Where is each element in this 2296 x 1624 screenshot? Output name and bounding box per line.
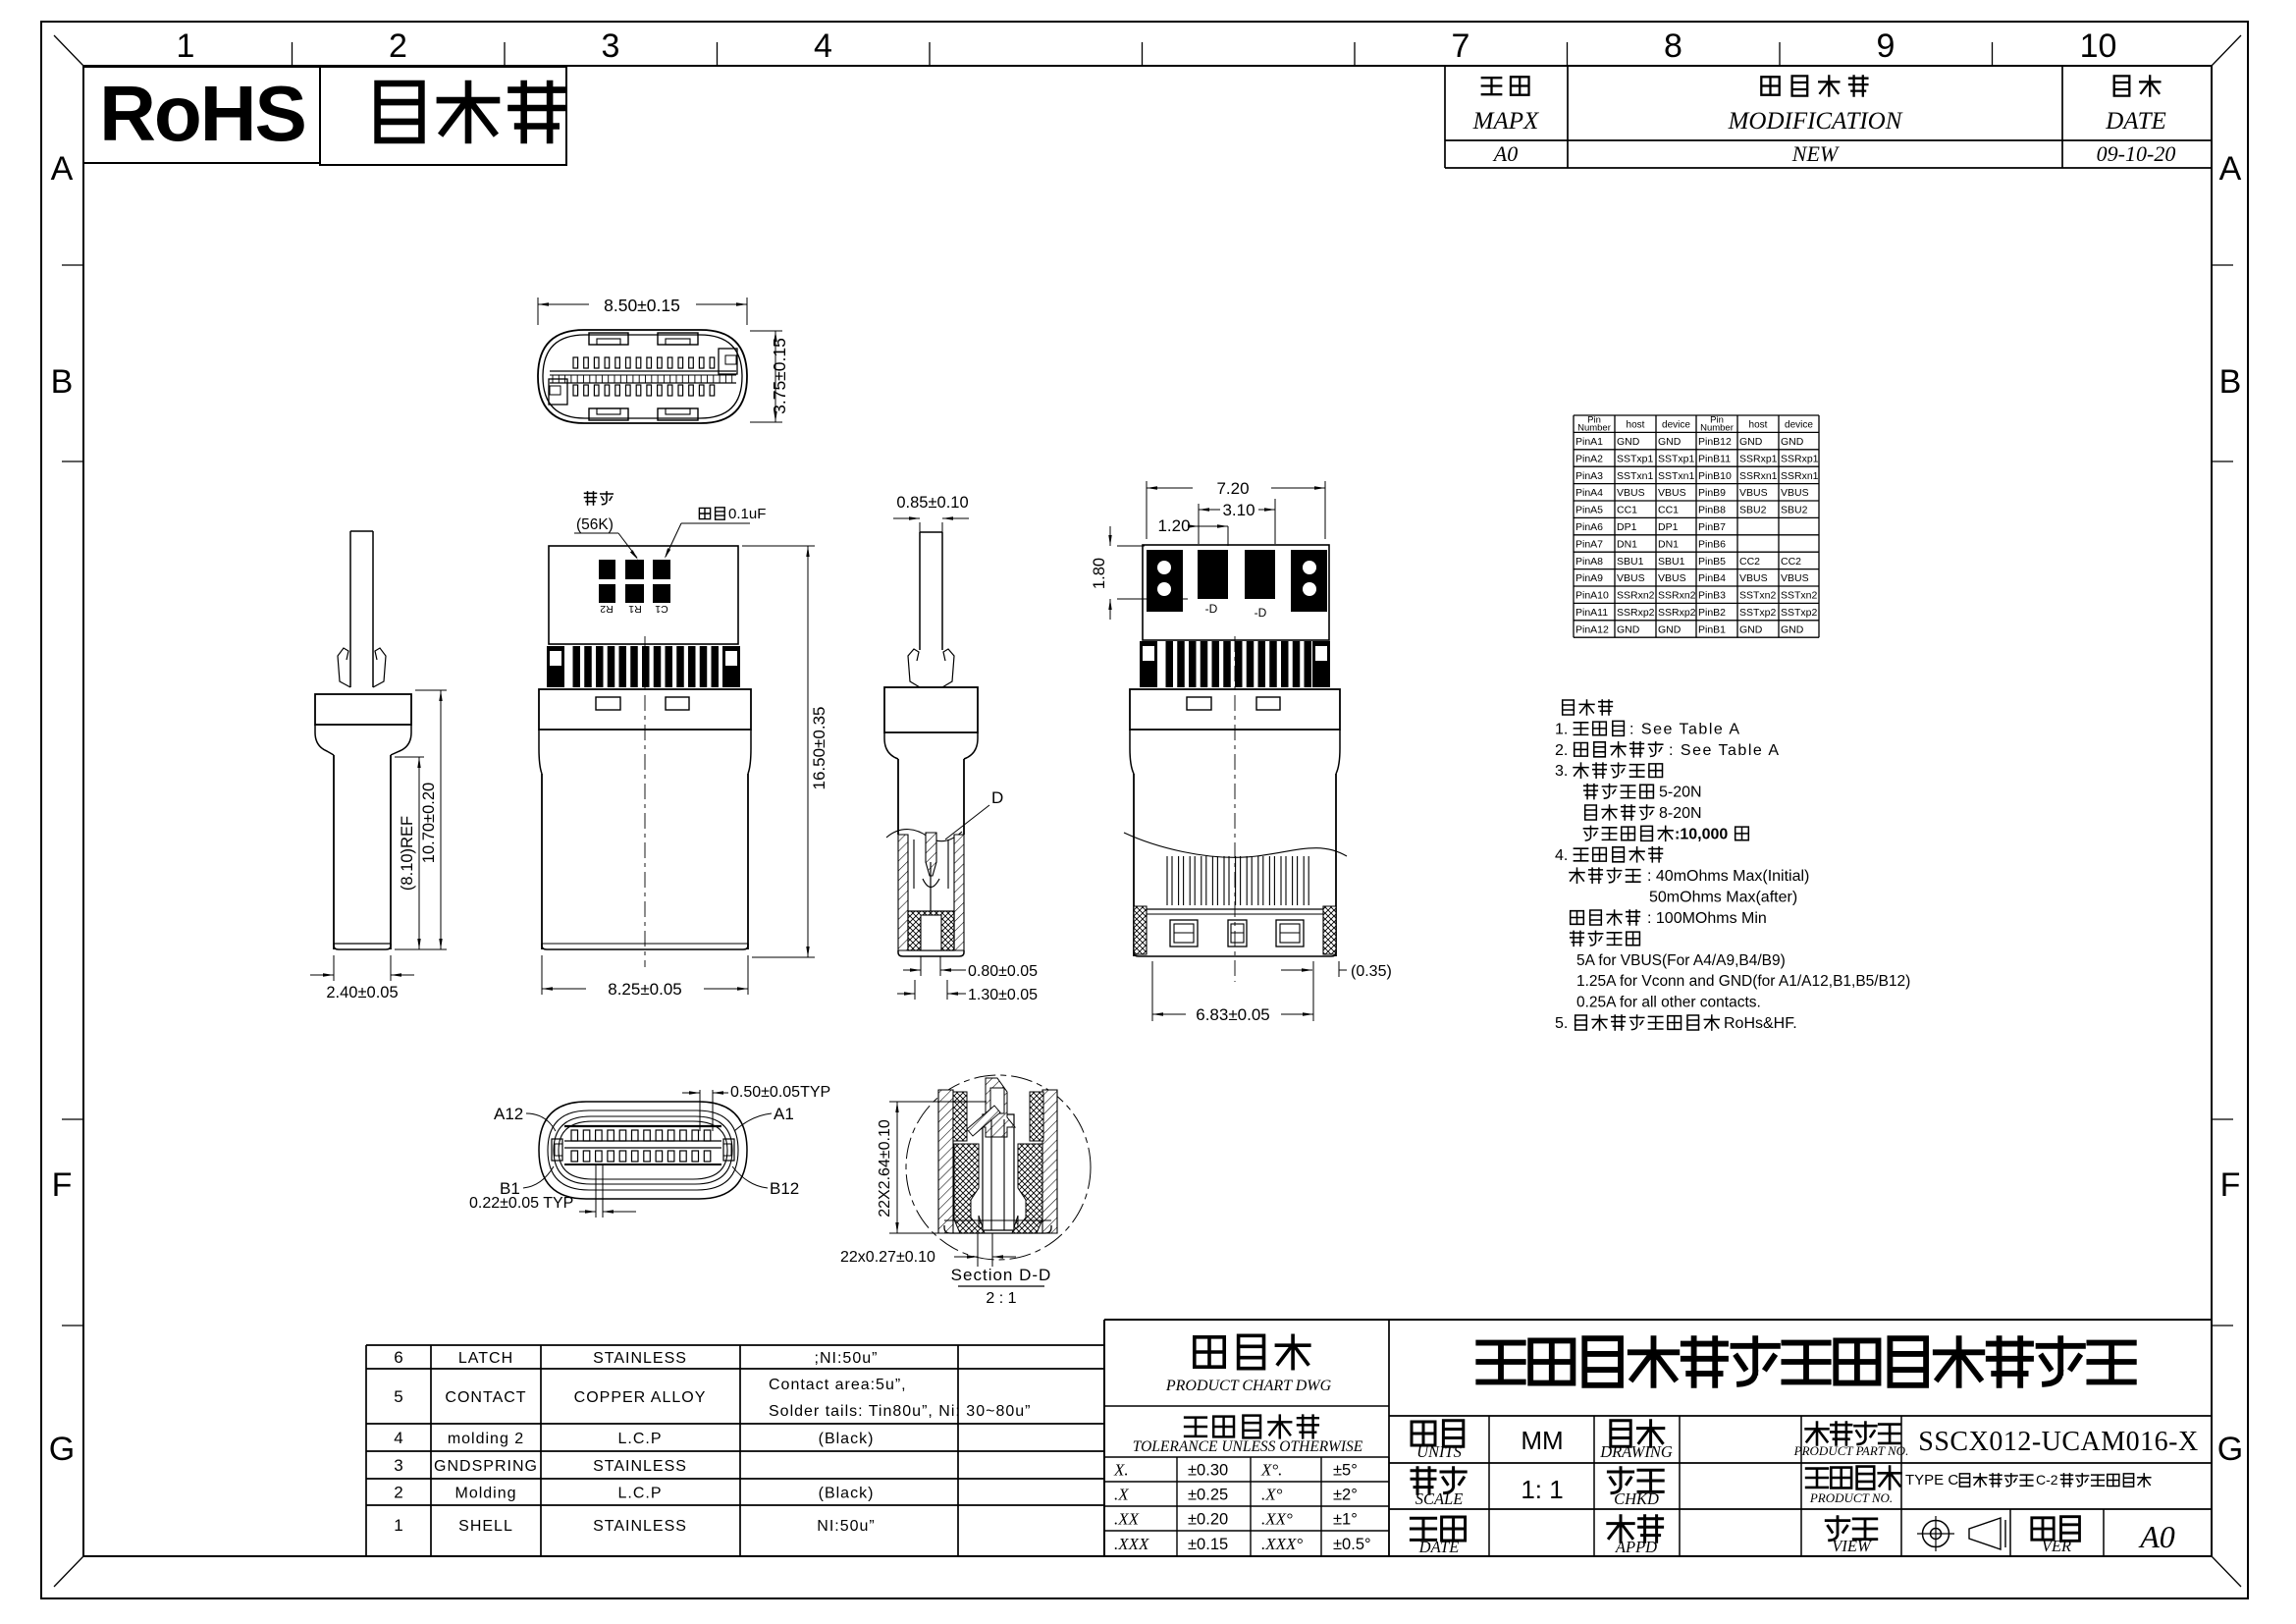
svg-text:PinB11: PinB11 xyxy=(1698,453,1731,464)
svg-text:PinA8: PinA8 xyxy=(1575,556,1603,568)
svg-text:CC1: CC1 xyxy=(1658,505,1679,516)
svg-text:GNDSPRING: GNDSPRING xyxy=(434,1458,538,1475)
svg-text:MM: MM xyxy=(1521,1426,1563,1455)
svg-text:SSTxn1: SSTxn1 xyxy=(1658,470,1695,482)
svg-text:A1: A1 xyxy=(774,1105,794,1123)
svg-text:SCALE: SCALE xyxy=(1415,1489,1464,1508)
svg-text:X°.: X°. xyxy=(1260,1461,1282,1480)
svg-text:PinB9: PinB9 xyxy=(1698,487,1726,499)
svg-text:VER: VER xyxy=(2042,1537,2071,1555)
svg-text:1.30±0.05: 1.30±0.05 xyxy=(968,987,1038,1003)
svg-text:±5°: ±5° xyxy=(1333,1462,1358,1480)
svg-text:R2: R2 xyxy=(600,603,614,615)
svg-text:GND: GND xyxy=(1781,436,1804,448)
svg-text:TYPE C: TYPE C xyxy=(1905,1472,1958,1489)
svg-text:3.75±0.15: 3.75±0.15 xyxy=(770,338,789,414)
svg-text:STAINLESS: STAINLESS xyxy=(593,1458,687,1475)
svg-text:PRODUCT PART NO.: PRODUCT PART NO. xyxy=(1793,1443,1909,1458)
svg-text:(Black): (Black) xyxy=(819,1431,875,1447)
svg-text:PinA1: PinA1 xyxy=(1575,436,1603,448)
svg-text:3: 3 xyxy=(602,27,620,65)
svg-text:6: 6 xyxy=(394,1348,402,1367)
svg-text:DN1: DN1 xyxy=(1658,538,1679,550)
svg-text:R1: R1 xyxy=(628,603,642,615)
svg-text:X.: X. xyxy=(1113,1461,1129,1480)
svg-text::10,000: :10,000 xyxy=(1675,826,1728,842)
svg-text:SSRxp2: SSRxp2 xyxy=(1617,607,1655,619)
svg-text:CC2: CC2 xyxy=(1739,556,1760,568)
svg-text:SSTxp1: SSTxp1 xyxy=(1617,453,1654,464)
svg-text:A0: A0 xyxy=(1492,141,1518,166)
svg-text:PinB3: PinB3 xyxy=(1698,590,1726,602)
svg-text:.XX: .XX xyxy=(1114,1510,1140,1529)
svg-text:0.80±0.05: 0.80±0.05 xyxy=(968,963,1038,980)
svg-text:device: device xyxy=(1785,420,1813,431)
svg-text:RoHs&HF.: RoHs&HF. xyxy=(1724,1015,1797,1032)
svg-text:VBUS: VBUS xyxy=(1658,487,1686,499)
svg-text:PinB1: PinB1 xyxy=(1698,623,1726,635)
svg-text:09-10-20: 09-10-20 xyxy=(2097,141,2176,166)
svg-text:Number: Number xyxy=(1700,423,1734,434)
svg-text:2 : 1: 2 : 1 xyxy=(986,1290,1016,1307)
svg-text:PRODUCT CHART DWG: PRODUCT CHART DWG xyxy=(1165,1378,1332,1394)
svg-text:B: B xyxy=(51,363,74,401)
svg-text:STAINLESS: STAINLESS xyxy=(593,1350,687,1367)
svg-text:PinA11: PinA11 xyxy=(1575,607,1608,619)
svg-text:10.70±0.20: 10.70±0.20 xyxy=(420,783,438,863)
svg-text:1.80: 1.80 xyxy=(1091,558,1108,589)
svg-text:: See Table A: : See Table A xyxy=(1669,742,1781,759)
svg-text:SSRxn1: SSRxn1 xyxy=(1781,470,1819,482)
svg-text:.X: .X xyxy=(1114,1486,1129,1504)
svg-text:A: A xyxy=(51,150,74,188)
svg-text:device: device xyxy=(1662,420,1690,431)
svg-text:8: 8 xyxy=(1664,27,1682,65)
svg-text:Molding: Molding xyxy=(454,1486,516,1502)
svg-text:±0.30: ±0.30 xyxy=(1188,1462,1228,1480)
svg-text:PinB12: PinB12 xyxy=(1698,436,1732,448)
svg-text:1.25A for Vconn and GND(for A1: 1.25A for Vconn and GND(for A1/A12,B1,B5… xyxy=(1576,973,1910,990)
svg-text:: 100MOhms Min: : 100MOhms Min xyxy=(1647,910,1767,927)
svg-text:.XX°: .XX° xyxy=(1261,1510,1293,1529)
svg-text:Number: Number xyxy=(1577,423,1611,434)
svg-text:22X2.64±0.10: 22X2.64±0.10 xyxy=(877,1119,893,1218)
svg-text:GND: GND xyxy=(1658,623,1682,635)
svg-text:PinA7: PinA7 xyxy=(1575,538,1603,550)
svg-text:PinA5: PinA5 xyxy=(1575,505,1603,516)
svg-text:(56K): (56K) xyxy=(576,516,614,533)
svg-text:1.: 1. xyxy=(1555,721,1568,737)
svg-text:molding 2: molding 2 xyxy=(448,1431,524,1447)
svg-text:PinB8: PinB8 xyxy=(1698,505,1726,516)
svg-text:A0: A0 xyxy=(2138,1519,2175,1554)
svg-text:0.1uF: 0.1uF xyxy=(728,506,766,522)
svg-text:0.25A for all other contacts.: 0.25A for all other contacts. xyxy=(1576,995,1761,1011)
svg-text:2.40±0.05: 2.40±0.05 xyxy=(326,984,398,1001)
svg-text:SSRxn2: SSRxn2 xyxy=(1658,590,1696,602)
svg-text:±0.25: ±0.25 xyxy=(1188,1487,1228,1504)
svg-text:-D: -D xyxy=(1205,602,1218,616)
svg-text:GND: GND xyxy=(1617,623,1640,635)
svg-text:PinB10: PinB10 xyxy=(1698,470,1732,482)
svg-text:CHKD: CHKD xyxy=(1614,1489,1659,1508)
svg-text:CC2: CC2 xyxy=(1781,556,1801,568)
svg-text:GND: GND xyxy=(1781,623,1804,635)
svg-text:A: A xyxy=(2219,150,2242,188)
svg-text:VIEW: VIEW xyxy=(1832,1537,1872,1555)
svg-text:CONTACT: CONTACT xyxy=(445,1389,526,1406)
svg-text:NEW: NEW xyxy=(1791,141,1840,166)
svg-text:SSTxn1: SSTxn1 xyxy=(1617,470,1654,482)
svg-text:8.50±0.15: 8.50±0.15 xyxy=(604,296,680,315)
svg-text:DATE: DATE xyxy=(1418,1538,1460,1556)
svg-text:1: 1 xyxy=(177,27,195,65)
svg-text:1: 1: 1: 1 xyxy=(1521,1475,1563,1504)
svg-text:COPPER ALLOY: COPPER ALLOY xyxy=(574,1389,707,1406)
svg-text:10: 10 xyxy=(2080,27,2117,65)
svg-text:DRAWING: DRAWING xyxy=(1599,1442,1673,1461)
svg-text:B12: B12 xyxy=(770,1179,799,1198)
svg-text:SHELL: SHELL xyxy=(458,1518,513,1535)
svg-text:3.: 3. xyxy=(1555,763,1568,780)
svg-text:Solder tails: Tin80u”, Ni: 30: Solder tails: Tin80u”, Ni: 30~80u” xyxy=(769,1403,1031,1420)
svg-text:SBU1: SBU1 xyxy=(1617,556,1644,568)
svg-text:4.: 4. xyxy=(1555,847,1568,864)
svg-text:SSTxp2: SSTxp2 xyxy=(1781,607,1818,619)
svg-text:GND: GND xyxy=(1739,436,1763,448)
svg-text:SSTxp1: SSTxp1 xyxy=(1658,453,1695,464)
svg-text:(0.35): (0.35) xyxy=(1351,963,1392,980)
svg-text:Contact area:5u”,: Contact area:5u”, xyxy=(769,1377,907,1393)
svg-text:(8.10)REF: (8.10)REF xyxy=(399,816,416,891)
svg-text:SSTxp2: SSTxp2 xyxy=(1739,607,1777,619)
svg-text:VBUS: VBUS xyxy=(1617,572,1645,584)
svg-text:APPD: APPD xyxy=(1615,1538,1657,1556)
svg-text:7: 7 xyxy=(1452,27,1470,65)
svg-text:±2°: ±2° xyxy=(1333,1487,1358,1504)
svg-text:2: 2 xyxy=(394,1484,402,1502)
svg-text:SBU1: SBU1 xyxy=(1658,556,1685,568)
svg-text:PinA3: PinA3 xyxy=(1575,470,1603,482)
svg-text:0.50±0.05TYP: 0.50±0.05TYP xyxy=(730,1084,830,1101)
svg-text:2: 2 xyxy=(389,27,407,65)
svg-text:-D: -D xyxy=(1255,606,1267,620)
svg-text:3: 3 xyxy=(394,1456,402,1475)
svg-text:7.20: 7.20 xyxy=(1216,479,1249,498)
svg-text:G: G xyxy=(49,1431,75,1468)
svg-text:16.50±0.35: 16.50±0.35 xyxy=(810,707,828,790)
svg-text:±1°: ±1° xyxy=(1333,1511,1358,1529)
svg-text:PinA9: PinA9 xyxy=(1575,572,1603,584)
svg-text:5A for VBUS(For A4/A9,B4/B9): 5A for VBUS(For A4/A9,B4/B9) xyxy=(1576,952,1786,969)
svg-text:6.83±0.05: 6.83±0.05 xyxy=(1196,1005,1270,1024)
svg-text:SBU2: SBU2 xyxy=(1781,505,1808,516)
svg-text:STAINLESS: STAINLESS xyxy=(593,1518,687,1535)
svg-text:1.20: 1.20 xyxy=(1157,516,1190,535)
svg-text:DP1: DP1 xyxy=(1617,521,1637,533)
svg-text:SBU2: SBU2 xyxy=(1739,505,1767,516)
svg-text:DN1: DN1 xyxy=(1617,538,1637,550)
svg-text:4: 4 xyxy=(814,27,832,65)
svg-text:GND: GND xyxy=(1617,436,1640,448)
svg-text:50mOhms Max(after): 50mOhms Max(after) xyxy=(1649,890,1797,906)
svg-text:0.22±0.05 TYP: 0.22±0.05 TYP xyxy=(469,1195,573,1212)
svg-text:CC1: CC1 xyxy=(1617,505,1637,516)
svg-text:B: B xyxy=(2219,363,2242,401)
svg-text:VBUS: VBUS xyxy=(1658,572,1686,584)
svg-text:LATCH: LATCH xyxy=(458,1350,513,1367)
svg-text:PRODUCT NO.: PRODUCT NO. xyxy=(1809,1490,1893,1505)
svg-text:SSRxn1: SSRxn1 xyxy=(1739,470,1778,482)
svg-text:.X°: .X° xyxy=(1261,1486,1283,1504)
svg-text:2.: 2. xyxy=(1555,742,1568,759)
svg-text:SSTxn2: SSTxn2 xyxy=(1781,590,1818,602)
svg-text:PinA2: PinA2 xyxy=(1575,453,1603,464)
svg-text:±0.20: ±0.20 xyxy=(1188,1511,1228,1529)
svg-text:VBUS: VBUS xyxy=(1739,572,1768,584)
svg-text:C-2: C-2 xyxy=(2036,1472,2058,1488)
svg-text:8-20N: 8-20N xyxy=(1659,805,1702,822)
svg-text:PinB2: PinB2 xyxy=(1698,607,1726,619)
svg-text:±0.15: ±0.15 xyxy=(1188,1536,1228,1553)
svg-text:PinB6: PinB6 xyxy=(1698,538,1726,550)
svg-text:DATE: DATE xyxy=(2105,108,2166,135)
svg-text:MODIFICATION: MODIFICATION xyxy=(1728,108,1903,135)
svg-text:F: F xyxy=(2220,1166,2241,1204)
svg-text:GND: GND xyxy=(1739,623,1763,635)
svg-text:.XXX: .XXX xyxy=(1114,1535,1149,1553)
svg-text:C1: C1 xyxy=(655,603,668,615)
svg-text:PinA10: PinA10 xyxy=(1575,590,1609,602)
svg-text:L.C.P: L.C.P xyxy=(617,1486,662,1502)
svg-text:(Black): (Black) xyxy=(819,1486,875,1502)
svg-text:VBUS: VBUS xyxy=(1617,487,1645,499)
svg-text:D: D xyxy=(991,788,1003,807)
svg-text:DP1: DP1 xyxy=(1658,521,1679,533)
svg-text:GND: GND xyxy=(1658,436,1682,448)
svg-text:.XXX°: .XXX° xyxy=(1261,1535,1303,1553)
svg-text:9: 9 xyxy=(1877,27,1896,65)
svg-text:: See Table A: : See Table A xyxy=(1629,721,1741,737)
svg-text:RoHS: RoHS xyxy=(99,70,305,157)
svg-text:±0.5°: ±0.5° xyxy=(1333,1536,1371,1553)
svg-text:Section D-D: Section D-D xyxy=(951,1266,1052,1284)
svg-text:G: G xyxy=(2217,1431,2243,1468)
svg-text:3.10: 3.10 xyxy=(1222,501,1255,519)
svg-text:NI:50u”: NI:50u” xyxy=(817,1518,875,1535)
svg-text:5-20N: 5-20N xyxy=(1659,785,1702,801)
svg-text:SSRxp1: SSRxp1 xyxy=(1781,453,1819,464)
svg-text:F: F xyxy=(52,1166,73,1204)
svg-text:MAPX: MAPX xyxy=(1472,108,1540,135)
svg-text:8.25±0.05: 8.25±0.05 xyxy=(608,980,682,999)
svg-text:;NI:50u”: ;NI:50u” xyxy=(815,1350,879,1367)
svg-text:22x0.27±0.10: 22x0.27±0.10 xyxy=(840,1249,935,1266)
svg-text:VBUS: VBUS xyxy=(1739,487,1768,499)
svg-text:host: host xyxy=(1749,420,1768,431)
svg-text:4: 4 xyxy=(394,1429,402,1447)
svg-text:PinA4: PinA4 xyxy=(1575,487,1603,499)
svg-text:UNITS: UNITS xyxy=(1416,1442,1462,1461)
svg-text:PinB5: PinB5 xyxy=(1698,556,1726,568)
svg-text:PinA6: PinA6 xyxy=(1575,521,1603,533)
svg-text:host: host xyxy=(1627,420,1645,431)
svg-text:5.: 5. xyxy=(1555,1015,1568,1032)
svg-text:: 40mOhms Max(Initial): : 40mOhms Max(Initial) xyxy=(1647,868,1809,885)
svg-text:SSRxn2: SSRxn2 xyxy=(1617,590,1655,602)
svg-text:SSRxp1: SSRxp1 xyxy=(1739,453,1778,464)
svg-text:SSCX012-UCAM016-X: SSCX012-UCAM016-X xyxy=(1918,1427,2198,1457)
svg-text:VBUS: VBUS xyxy=(1781,487,1809,499)
svg-text:PinA12: PinA12 xyxy=(1575,623,1609,635)
svg-text:PinB7: PinB7 xyxy=(1698,521,1726,533)
svg-text:PinB4: PinB4 xyxy=(1698,572,1726,584)
svg-text:VBUS: VBUS xyxy=(1781,572,1809,584)
svg-text:1: 1 xyxy=(394,1516,402,1535)
svg-text:5: 5 xyxy=(394,1387,402,1406)
svg-text:TOLERANCE UNLESS OTHERWISE: TOLERANCE UNLESS OTHERWISE xyxy=(1133,1438,1363,1455)
svg-text:0.85±0.10: 0.85±0.10 xyxy=(896,494,968,512)
svg-text:A12: A12 xyxy=(494,1105,523,1123)
svg-text:SSRxp2: SSRxp2 xyxy=(1658,607,1696,619)
svg-text:SSTxn2: SSTxn2 xyxy=(1739,590,1777,602)
svg-text:L.C.P: L.C.P xyxy=(617,1431,662,1447)
